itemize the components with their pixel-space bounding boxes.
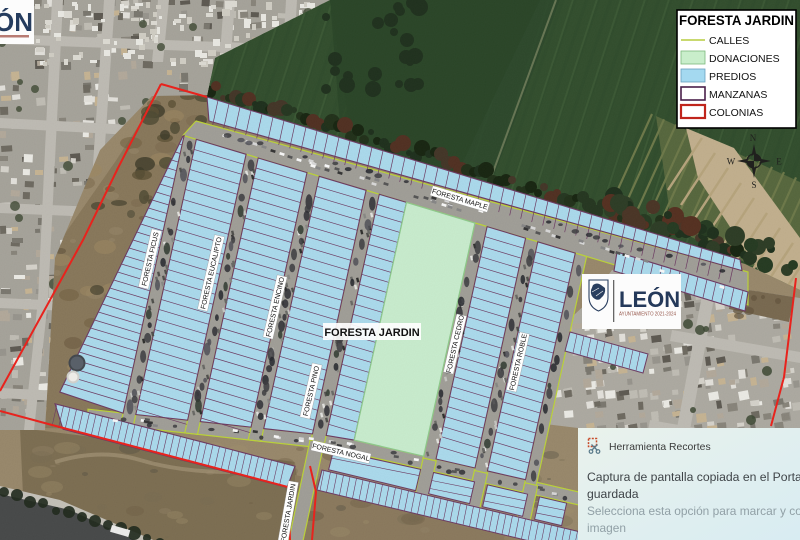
svg-text:AYUNTAMIENTO 2021-2024: AYUNTAMIENTO 2021-2024 [619,312,676,318]
svg-text:ÓN: ÓN [0,7,33,37]
svg-text:CALLES: CALLES [709,35,749,47]
svg-text:W: W [727,157,736,167]
svg-text:LEÓN: LEÓN [619,287,680,312]
svg-text:FORESTA JARDIN: FORESTA JARDIN [324,327,419,339]
svg-text:PREDIOS: PREDIOS [709,71,756,83]
svg-text:E: E [776,157,782,167]
svg-text:Selecciona esta opción para ma: Selecciona esta opción para marcar y cor [587,504,800,518]
svg-text:FORESTA JARDIN: FORESTA JARDIN [679,12,794,28]
svg-text:imagen: imagen [587,521,626,535]
svg-text:MANZANAS: MANZANAS [709,89,767,101]
svg-text:Herramienta Recortes: Herramienta Recortes [609,442,711,453]
svg-text:COLONIAS: COLONIAS [709,107,763,119]
svg-text:S: S [751,180,756,190]
svg-text:guardada: guardada [587,487,639,501]
svg-text:DONACIONES: DONACIONES [709,53,780,65]
svg-text:N: N [750,133,757,143]
svg-text:Captura de pantalla copiada en: Captura de pantalla copiada en el Portap [587,470,800,484]
